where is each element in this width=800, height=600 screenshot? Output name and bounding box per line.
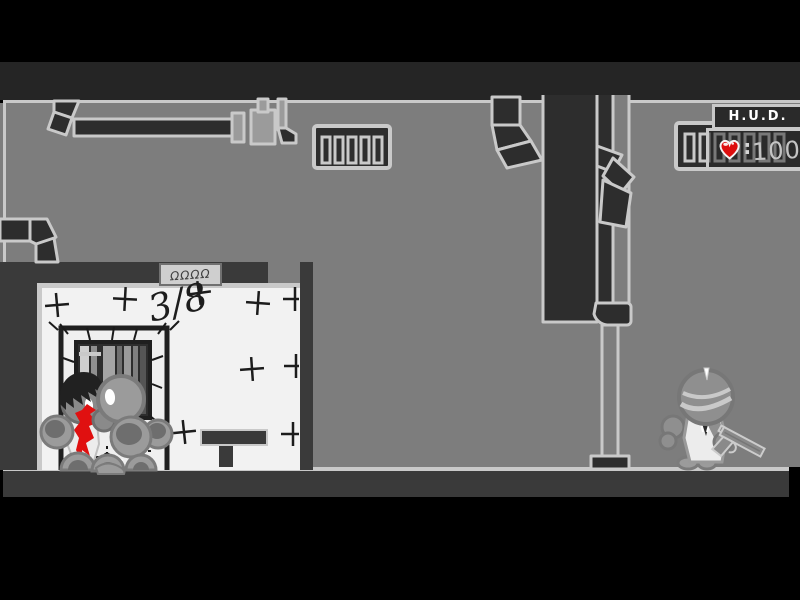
heart-icon	[717, 136, 742, 162]
room-right-wall	[300, 262, 313, 470]
underfloor-band	[3, 471, 789, 497]
bench	[200, 429, 268, 446]
game-canvas[interactable]: ΩΩΩΩ	[0, 0, 800, 600]
room-header-band	[0, 262, 268, 284]
bench-leg	[219, 446, 233, 467]
hud-panel: : 100	[706, 128, 800, 170]
health-separator: :	[743, 135, 751, 159]
hud-title: H.U.D.	[712, 104, 800, 130]
room-left-wall	[0, 283, 42, 470]
health-value: 100	[751, 136, 800, 167]
ceiling-dark-band	[0, 62, 800, 100]
